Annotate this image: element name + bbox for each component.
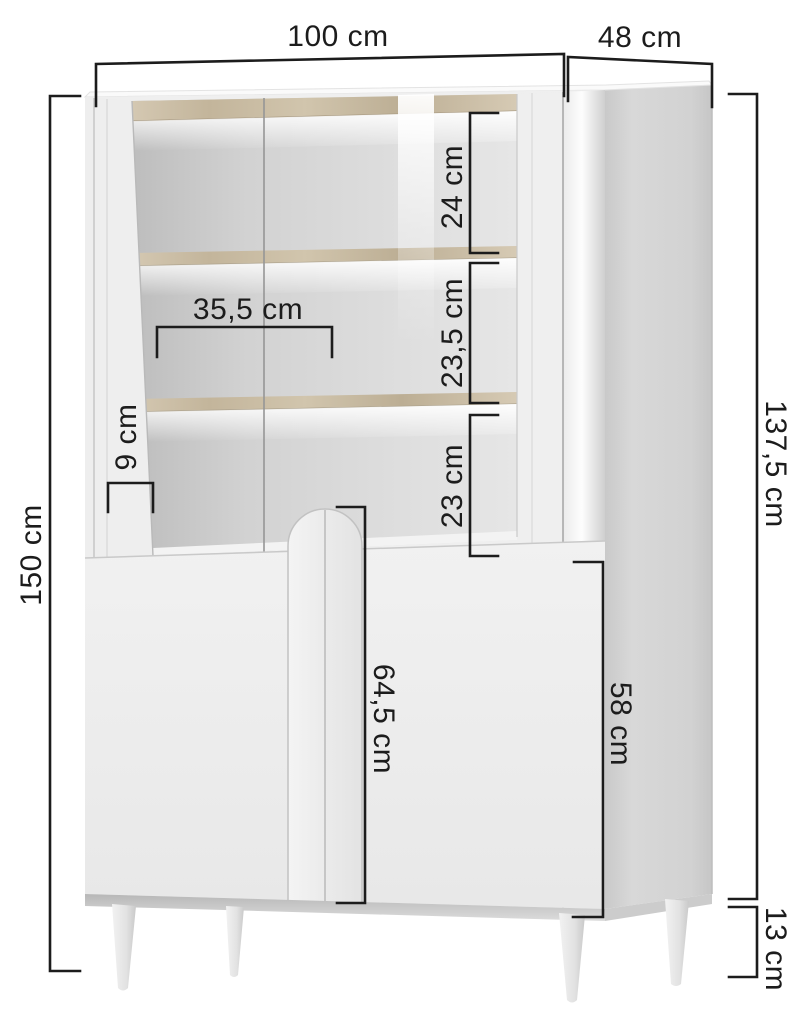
glass-reflection bbox=[398, 94, 434, 344]
cabinet-dimension-diagram: 100 cm 48 cm 150 cm 137,5 cm 13 cm 24 cm… bbox=[0, 0, 807, 1020]
dim-leg-height: 13 cm bbox=[729, 907, 792, 991]
dim-lower-door-height-label: 64,5 cm bbox=[367, 664, 400, 774]
wood-top-strip bbox=[132, 94, 517, 151]
shelf-2 bbox=[132, 392, 517, 442]
lower-doors bbox=[85, 509, 605, 909]
dim-leg-height-label: 13 cm bbox=[759, 907, 792, 991]
dim-total-width-label: 100 cm bbox=[287, 20, 388, 53]
arch-handle bbox=[288, 509, 362, 903]
dim-body-height-label: 137,5 cm bbox=[759, 400, 792, 527]
dim-side-frame-width-label: 9 cm bbox=[110, 403, 143, 470]
leg-back-left bbox=[226, 906, 244, 977]
dim-upper-compartment-middle-label: 23,5 cm bbox=[436, 278, 469, 388]
cabinet-side-face bbox=[605, 85, 712, 909]
dim-total-height-label: 150 cm bbox=[15, 504, 48, 605]
dim-inner-width-label: 35,5 cm bbox=[193, 293, 303, 326]
cabinet-illustration bbox=[85, 81, 712, 1003]
dim-leg-height-line bbox=[729, 907, 757, 977]
dim-total-height-line bbox=[50, 96, 80, 971]
dim-upper-compartment-top-label: 24 cm bbox=[436, 145, 469, 229]
dim-total-height: 150 cm bbox=[15, 96, 80, 971]
dimension-diagram: 100 cm 48 cm 150 cm 137,5 cm 13 cm 24 cm… bbox=[0, 0, 807, 1020]
dim-body-height: 137,5 cm bbox=[729, 94, 792, 899]
leg-back-right bbox=[665, 899, 689, 986]
dim-lower-side-height-label: 58 cm bbox=[604, 682, 637, 766]
dim-depth-label: 48 cm bbox=[598, 21, 682, 54]
leg-front-right bbox=[559, 913, 585, 1003]
dim-body-height-line bbox=[729, 94, 757, 899]
dim-upper-compartment-bottom-label: 23 cm bbox=[436, 444, 469, 528]
leg-front-left bbox=[112, 904, 136, 991]
